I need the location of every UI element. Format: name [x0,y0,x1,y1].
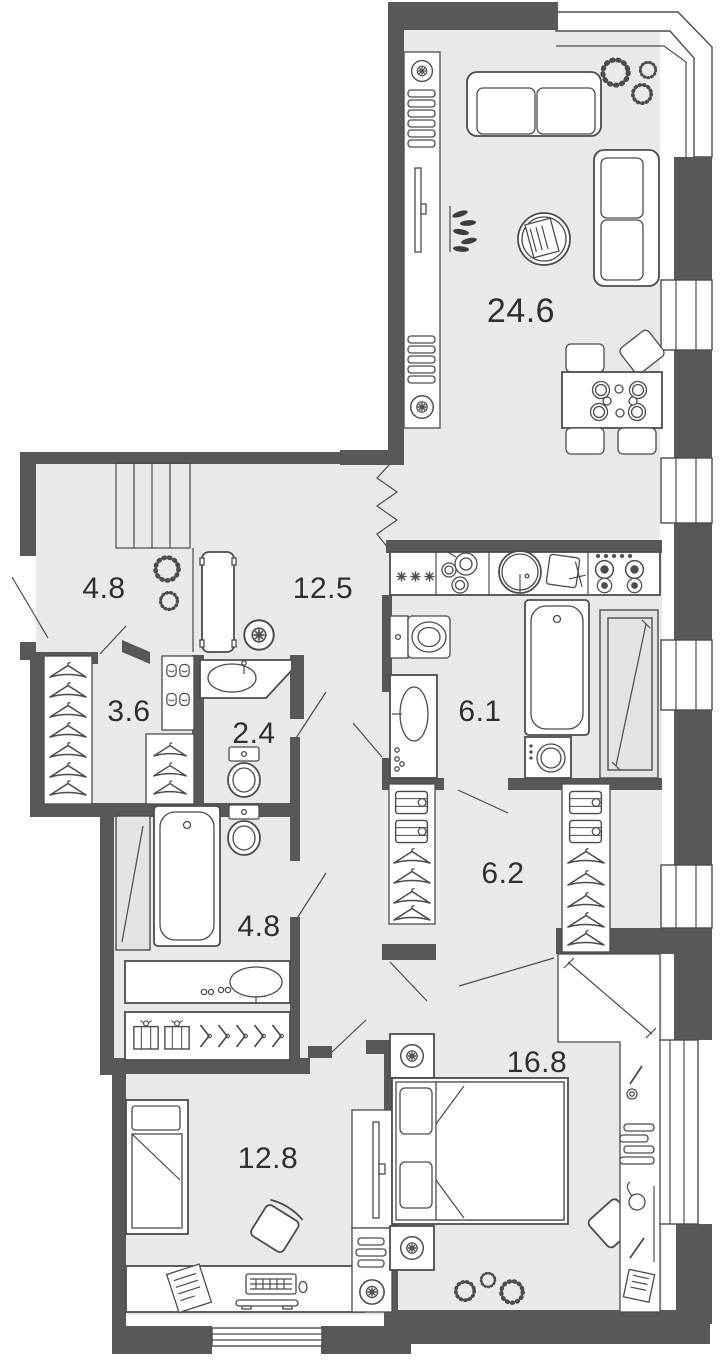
stove-burner-icon [596,561,614,579]
shelf-unit [352,1228,392,1312]
floor-plan: 24.6 12.5 4.8 3.6 2.4 6.1 6.2 4.8 16.8 1… [0,0,720,1372]
label-wc: 2.4 [232,717,275,750]
stove-burner-icon [627,578,641,592]
ceiling-lamp-icon [401,1045,424,1068]
closet-column-left [389,784,435,924]
label-closet: 3.6 [107,695,150,728]
window-bottom [212,1328,322,1346]
entrance-opening [20,556,36,642]
sink-counter [125,961,290,1004]
ceiling-lamp-icon [244,620,273,649]
window-right-2 [661,458,712,523]
label-bedroom-second: 12.8 [238,1142,298,1175]
freezer-unit [396,571,434,581]
label-living-room: 24.6 [487,292,555,330]
storage-box-icon [396,820,428,842]
window-right-1 [661,280,712,350]
media-wall-unit [404,52,440,428]
mirror-panel [116,816,150,950]
double-bed [392,1078,568,1224]
window-right-3 [661,640,712,710]
sofa-top [467,72,601,136]
storage-box-icon [570,820,602,842]
ceiling-lamp-icon [412,61,433,82]
panel-door [600,610,658,778]
storage-box-icon [396,791,428,813]
ceiling-lamp-icon [411,396,434,419]
storage-box-icon [570,791,602,813]
ceiling-lamp-icon [401,1237,424,1260]
closet-column-right [562,784,610,952]
coffee-table [518,213,570,265]
dining-chair [566,428,604,454]
shelf-slats-bottom [408,336,435,383]
hanger-rack-small [146,734,194,804]
label-entry-hall: 4.8 [82,572,125,605]
kitchen-sink [499,551,541,593]
sofa-right [594,150,659,286]
book-icon [623,1269,654,1302]
snowflake-icon [424,571,434,581]
shoe-rack [162,656,194,730]
washbasin-unit [390,675,437,778]
dining-chair [566,344,604,372]
window-bedroom-master [658,1040,698,1224]
stove-burner-icon [597,578,611,592]
dining-table [562,372,662,428]
desk [126,1264,364,1313]
snowflake-icon [410,571,420,581]
nightstand-bottom [390,1226,434,1270]
washing-machine [525,737,571,778]
bathtub [154,806,220,946]
label-bathroom: 6.1 [458,695,501,728]
dining-chair [618,428,656,454]
label-bathroom-2: 4.8 [237,910,280,943]
tall-cabinet [200,552,236,652]
snowflake-icon [396,571,406,581]
toilet [228,747,260,797]
stove-burner-icon [626,561,644,579]
nightstand-top [390,1034,434,1078]
tv-unit [352,1110,392,1228]
ceiling-lamp-icon [360,1280,384,1304]
vanity-sink [390,616,450,658]
bathtub [525,600,589,735]
single-bed [126,1100,188,1234]
window-right-4 [661,865,712,928]
hanger-rack [44,656,92,804]
label-bedroom-master: 16.8 [507,1046,567,1079]
kitchen-counter [390,551,660,595]
label-walkin-closet: 6.2 [481,857,524,890]
label-hallway: 12.5 [293,572,353,605]
floor-plan-canvas: 24.6 12.5 4.8 3.6 2.4 6.1 6.2 4.8 16.8 1… [0,0,720,1372]
wardrobe-cabinet [125,1012,290,1060]
toilet [228,805,260,855]
